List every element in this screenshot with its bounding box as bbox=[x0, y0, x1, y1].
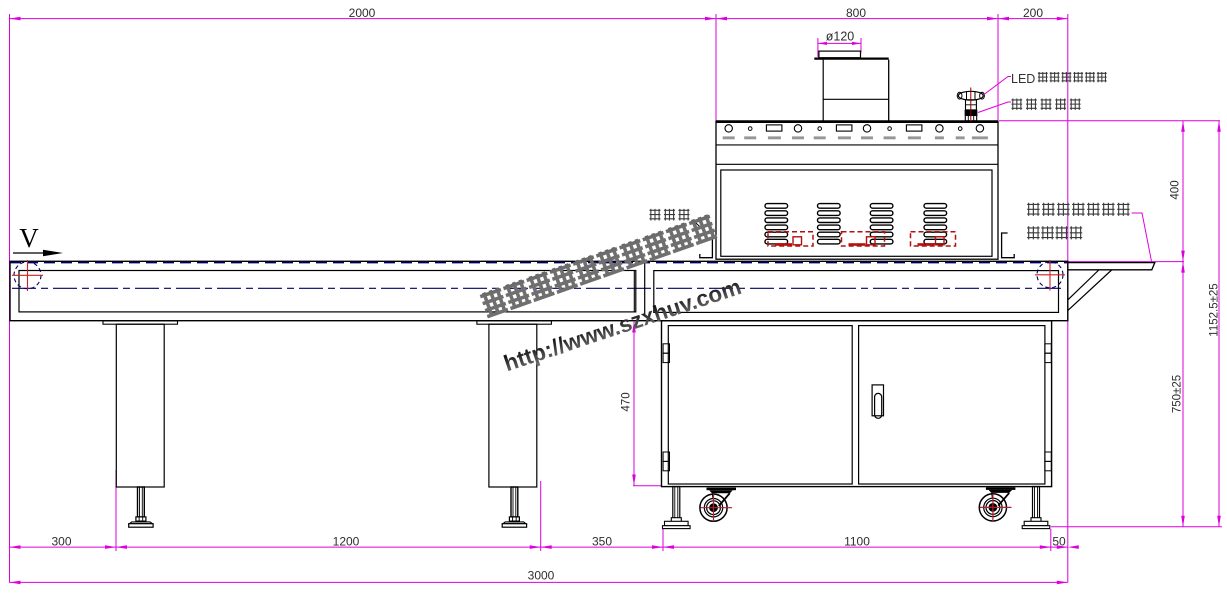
svg-text:1100: 1100 bbox=[844, 534, 870, 548]
svg-text:V: V bbox=[19, 223, 39, 253]
svg-text:400: 400 bbox=[1170, 180, 1182, 199]
svg-text:50: 50 bbox=[1052, 535, 1066, 549]
svg-text:800: 800 bbox=[846, 6, 866, 20]
svg-text:470: 470 bbox=[621, 392, 633, 411]
svg-text:2000: 2000 bbox=[349, 6, 376, 20]
svg-text:1152.5±25: 1152.5±25 bbox=[1209, 283, 1221, 336]
svg-text:350: 350 bbox=[592, 534, 612, 548]
svg-text:750±25: 750±25 bbox=[1172, 375, 1184, 413]
svg-text:300: 300 bbox=[51, 534, 71, 548]
svg-text:ø120: ø120 bbox=[826, 30, 855, 44]
svg-text:200: 200 bbox=[1023, 6, 1043, 20]
svg-text:3000: 3000 bbox=[528, 569, 555, 583]
svg-text:LED: LED bbox=[1011, 72, 1035, 86]
svg-text:1200: 1200 bbox=[333, 534, 360, 548]
